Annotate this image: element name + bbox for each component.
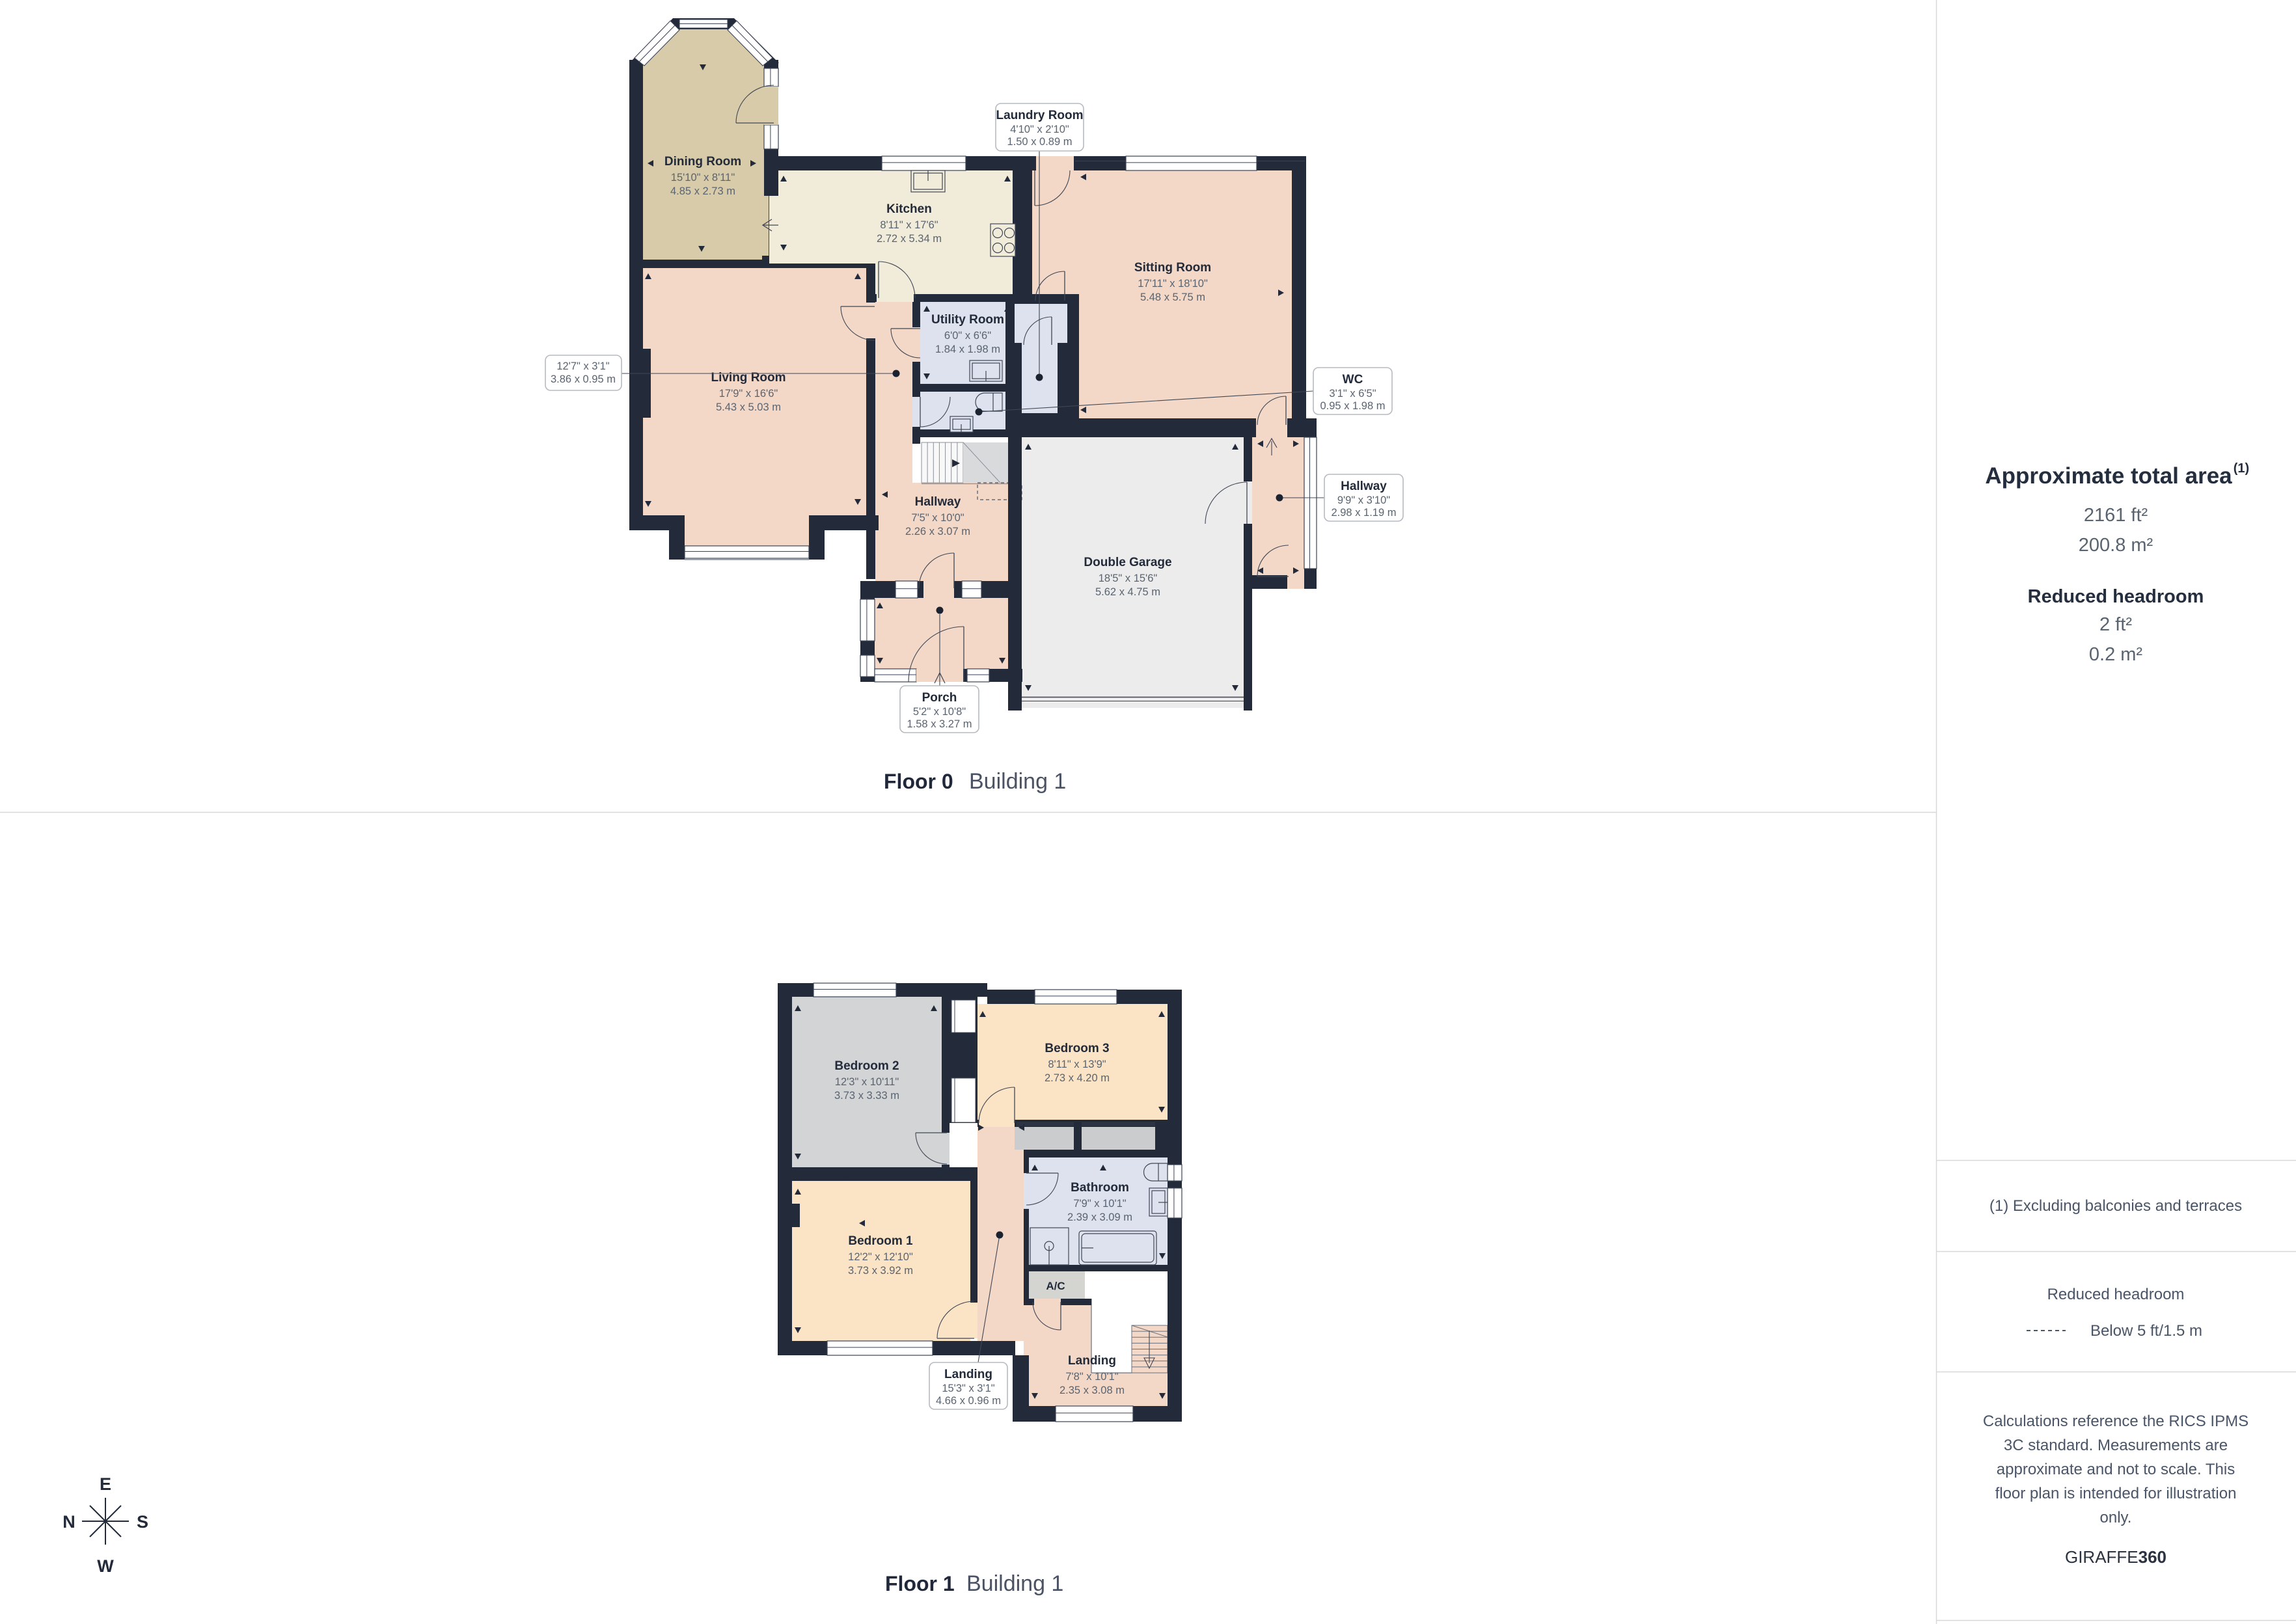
svg-text:Hallway: Hallway bbox=[1341, 480, 1387, 493]
svg-text:(1) Excluding balconies and te: (1) Excluding balconies and terraces bbox=[1989, 1197, 2242, 1215]
svg-text:3.86 x 0.95 m: 3.86 x 0.95 m bbox=[551, 373, 616, 385]
svg-text:Double Garage: Double Garage bbox=[1084, 556, 1171, 569]
svg-text:2.98 x 1.19 m: 2.98 x 1.19 m bbox=[1332, 507, 1397, 519]
svg-text:4.66 x 0.96 m: 4.66 x 0.96 m bbox=[936, 1395, 1001, 1407]
svg-text:Porch: Porch bbox=[922, 691, 957, 705]
svg-text:Bathroom: Bathroom bbox=[1071, 1181, 1129, 1195]
svg-text:Floor 1: Floor 1 bbox=[885, 1572, 955, 1595]
svg-text:12'7" x 3'1": 12'7" x 3'1" bbox=[556, 360, 609, 372]
svg-text:2.72 x 5.34 m: 2.72 x 5.34 m bbox=[877, 233, 942, 245]
svg-text:Bedroom 2: Bedroom 2 bbox=[834, 1059, 899, 1073]
svg-text:Reduced headroom: Reduced headroom bbox=[2028, 586, 2204, 607]
svg-text:1.58 x 3.27 m: 1.58 x 3.27 m bbox=[907, 718, 972, 730]
svg-text:0.2 m²: 0.2 m² bbox=[2089, 644, 2143, 665]
svg-text:5.43 x 5.03 m: 5.43 x 5.03 m bbox=[716, 401, 781, 413]
svg-text:Building 1: Building 1 bbox=[966, 1571, 1063, 1596]
svg-text:7'5" x 10'0": 7'5" x 10'0" bbox=[911, 512, 964, 524]
svg-text:8'11" x 17'6": 8'11" x 17'6" bbox=[880, 219, 938, 231]
svg-text:3C standard. Measurements are: 3C standard. Measurements are bbox=[2004, 1437, 2228, 1454]
svg-text:0.95 x 1.98 m: 0.95 x 1.98 m bbox=[1320, 400, 1386, 412]
svg-text:floor plan is intended for ill: floor plan is intended for illustration bbox=[1995, 1485, 2237, 1502]
svg-text:E: E bbox=[100, 1474, 111, 1494]
svg-text:2.26 x 3.07 m: 2.26 x 3.07 m bbox=[905, 526, 970, 537]
svg-text:Landing: Landing bbox=[944, 1368, 992, 1381]
svg-text:Laundry Room: Laundry Room bbox=[996, 109, 1083, 122]
svg-text:A/C: A/C bbox=[1046, 1280, 1065, 1292]
svg-text:3'1" x 6'5": 3'1" x 6'5" bbox=[1329, 388, 1376, 399]
svg-text:only.: only. bbox=[2100, 1509, 2132, 1526]
svg-text:2 ft²: 2 ft² bbox=[2099, 614, 2132, 635]
svg-text:S: S bbox=[137, 1512, 148, 1532]
svg-text:Hallway: Hallway bbox=[915, 495, 961, 509]
svg-text:W: W bbox=[97, 1556, 114, 1576]
svg-text:Building 1: Building 1 bbox=[969, 769, 1066, 794]
svg-text:Utility Room: Utility Room bbox=[931, 313, 1004, 327]
svg-text:2161 ft²: 2161 ft² bbox=[2084, 505, 2148, 526]
svg-text:3.73 x 3.33 m: 3.73 x 3.33 m bbox=[834, 1090, 899, 1102]
svg-text:Approximate total area: Approximate total area bbox=[1985, 463, 2232, 489]
svg-text:8'11" x 13'9": 8'11" x 13'9" bbox=[1048, 1059, 1106, 1070]
svg-text:WC: WC bbox=[1343, 373, 1363, 386]
svg-text:17'11" x 18'10": 17'11" x 18'10" bbox=[1138, 278, 1208, 290]
svg-text:1.50 x 0.89 m: 1.50 x 0.89 m bbox=[1007, 136, 1073, 148]
svg-text:200.8 m²: 200.8 m² bbox=[2079, 535, 2153, 556]
svg-text:18'5" x 15'6": 18'5" x 15'6" bbox=[1099, 573, 1158, 584]
svg-text:N: N bbox=[62, 1512, 75, 1532]
svg-text:(1): (1) bbox=[2234, 461, 2249, 476]
svg-text:Dining Room: Dining Room bbox=[664, 155, 741, 169]
svg-text:Living Room: Living Room bbox=[711, 371, 786, 385]
svg-text:6'0" x 6'6": 6'0" x 6'6" bbox=[944, 330, 991, 342]
svg-text:Reduced headroom: Reduced headroom bbox=[2047, 1286, 2185, 1303]
svg-text:4.85 x 2.73 m: 4.85 x 2.73 m bbox=[670, 185, 735, 197]
svg-text:Kitchen: Kitchen bbox=[886, 202, 932, 216]
svg-text:4'10" x 2'10": 4'10" x 2'10" bbox=[1010, 124, 1069, 135]
svg-text:15'3" x 3'1": 15'3" x 3'1" bbox=[942, 1383, 994, 1394]
svg-text:Floor 0: Floor 0 bbox=[884, 770, 953, 793]
svg-text:5.62 x 4.75 m: 5.62 x 4.75 m bbox=[1095, 586, 1160, 598]
svg-text:5.48 x 5.75 m: 5.48 x 5.75 m bbox=[1140, 291, 1205, 303]
svg-text:Calculations reference the RIC: Calculations reference the RICS IPMS bbox=[1983, 1413, 2248, 1430]
svg-text:3.73 x 3.92 m: 3.73 x 3.92 m bbox=[848, 1265, 913, 1277]
svg-text:Landing: Landing bbox=[1068, 1354, 1116, 1368]
svg-text:Bedroom 3: Bedroom 3 bbox=[1045, 1042, 1109, 1055]
svg-text:5'2" x 10'8": 5'2" x 10'8" bbox=[913, 706, 966, 718]
svg-text:approximate and not to scale.: approximate and not to scale. This bbox=[1997, 1461, 2235, 1478]
svg-text:12'2" x 12'10": 12'2" x 12'10" bbox=[848, 1251, 913, 1263]
svg-text:17'9" x 16'6": 17'9" x 16'6" bbox=[719, 388, 778, 399]
svg-text:1.84 x 1.98 m: 1.84 x 1.98 m bbox=[935, 344, 1000, 355]
svg-text:Bedroom 1: Bedroom 1 bbox=[848, 1234, 913, 1248]
svg-text:15'10" x 8'11": 15'10" x 8'11" bbox=[671, 172, 735, 183]
svg-text:12'3" x 10'11": 12'3" x 10'11" bbox=[835, 1076, 899, 1088]
svg-text:2.35 x 3.08 m: 2.35 x 3.08 m bbox=[1059, 1385, 1125, 1396]
svg-text:2.73 x 4.20 m: 2.73 x 4.20 m bbox=[1045, 1072, 1110, 1084]
svg-text:Sitting Room: Sitting Room bbox=[1134, 261, 1211, 275]
svg-text:Below 5 ft/1.5 m: Below 5 ft/1.5 m bbox=[2090, 1322, 2202, 1340]
svg-text:7'9" x 10'1": 7'9" x 10'1" bbox=[1073, 1198, 1126, 1210]
svg-text:7'8" x 10'1": 7'8" x 10'1" bbox=[1065, 1371, 1118, 1383]
svg-text:9'9" x 3'10": 9'9" x 3'10" bbox=[1337, 494, 1390, 506]
svg-text:2.39 x 3.09 m: 2.39 x 3.09 m bbox=[1067, 1211, 1132, 1223]
svg-text:GIRAFFE360: GIRAFFE360 bbox=[2065, 1547, 2166, 1567]
